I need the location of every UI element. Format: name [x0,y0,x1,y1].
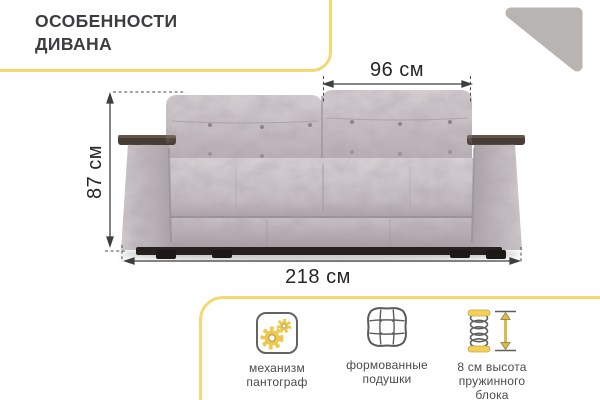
sofa-illustration [110,80,535,265]
spring-block-height-icon [466,308,518,354]
dimension-cushion-width: 96 см [337,59,457,82]
feature-molded-cushions-label: формованные подушки [346,358,428,386]
feature-spring-block: 8 см высота пружинного блока [432,302,552,400]
dimension-height: 87 см [84,132,108,212]
fabric-texture-overlay [110,80,535,262]
feature-pantograph: механизм пантограф [217,303,337,389]
pantograph-mechanism-icon [255,311,299,355]
feature-spring-block-label: 8 см высота пружинного блока [457,360,526,400]
dimension-length: 218 см [258,266,378,289]
feature-molded-cushions: формованные подушки [327,300,447,386]
page-title: ОСОБЕННОСТИ ДИВАНА [35,10,255,56]
corner-triangle-decoration [495,2,590,82]
molded-cushions-icon [362,302,412,352]
infographic-canvas: ОСОБЕННОСТИ ДИВАНА [0,0,600,400]
feature-pantograph-label: механизм пантограф [246,361,307,389]
